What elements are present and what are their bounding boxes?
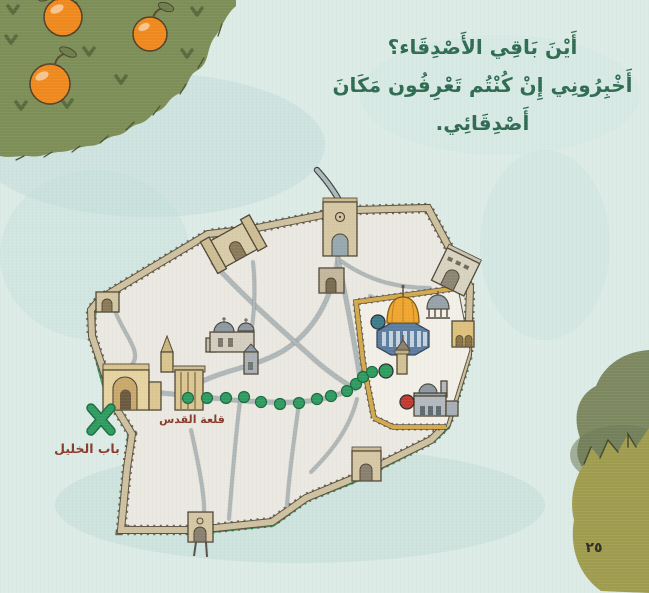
path-dot xyxy=(183,393,194,404)
path-dot xyxy=(256,397,267,408)
dung-gate xyxy=(352,447,381,481)
path-dot xyxy=(239,392,250,403)
inner-gate-building xyxy=(319,268,344,293)
jaffa-gate-label: باب الخليل xyxy=(52,441,122,456)
path-dot xyxy=(326,391,337,402)
narration-line-3: أَصْدِقَائِي. xyxy=(330,104,635,142)
narration-text: أَيْنَ بَاقِي الأَصْدِقَاء؟ أَخْبِرُونِي… xyxy=(330,28,635,142)
damascus-gate xyxy=(323,198,357,256)
path-dot xyxy=(221,393,232,404)
green-location-marker xyxy=(379,364,393,378)
red-location-marker xyxy=(400,395,414,409)
page-number: ٢٥ xyxy=(577,540,611,556)
x-mark xyxy=(91,408,111,431)
path-dot xyxy=(312,394,323,405)
teal-location-marker xyxy=(371,315,385,329)
path-dot xyxy=(275,399,286,410)
west-gate xyxy=(96,292,119,312)
golden-gate xyxy=(452,321,474,347)
book-page: أَيْنَ بَاقِي الأَصْدِقَاء؟ أَخْبِرُونِي… xyxy=(0,0,649,593)
citadel-label: قلعة القدس xyxy=(150,413,234,426)
path-dot xyxy=(294,398,305,409)
narration-line-1: أَيْنَ بَاقِي الأَصْدِقَاء؟ xyxy=(330,28,635,66)
narration-line-2: أَخْبِرُونِي إِنْ كُنْتُم تَعْرِفُون مَك… xyxy=(330,66,635,104)
path-dot xyxy=(202,393,213,404)
path-dot xyxy=(367,367,378,378)
